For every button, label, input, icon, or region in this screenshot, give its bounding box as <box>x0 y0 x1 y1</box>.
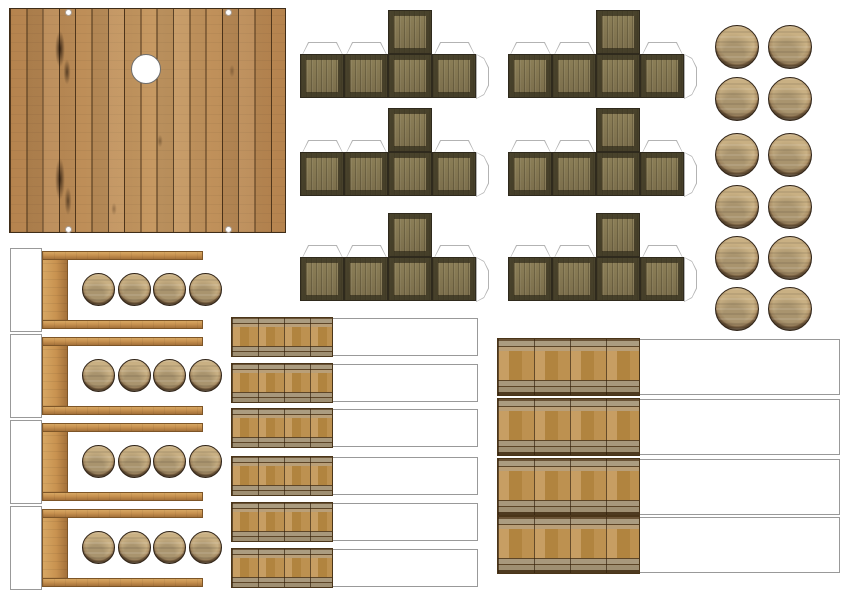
crate-glue-tab-fill <box>347 141 386 152</box>
crate-face <box>508 152 552 196</box>
crate-face <box>640 152 684 196</box>
barrel-top <box>715 287 759 331</box>
shelf-board-top <box>42 423 203 432</box>
crate-face <box>432 257 476 301</box>
crate-face <box>596 152 640 196</box>
barrel-top <box>715 77 759 121</box>
crate-face-top <box>596 10 640 54</box>
barrel-strip-blank <box>332 503 478 541</box>
shelf-post <box>42 251 68 329</box>
crate-glue-tab-fill <box>685 153 696 196</box>
barrel-strip-texture <box>497 516 640 574</box>
deck-corner-hole <box>65 226 72 233</box>
barrel-strip-small <box>231 317 478 357</box>
crate-glue-tab-fill <box>643 141 682 152</box>
barrel-strip-texture <box>497 458 640 516</box>
barrel-top <box>715 133 759 177</box>
shelf-glue-panel <box>10 248 42 332</box>
shelf-barrel <box>82 445 115 478</box>
crate-glue-tab-fill <box>435 43 474 54</box>
barrel-strip-blank <box>639 459 840 515</box>
shelf-glue-panel <box>10 334 42 418</box>
crate-glue-tab-fill <box>555 141 594 152</box>
shelf-board-top <box>42 337 203 346</box>
crate-face <box>552 54 596 98</box>
barrel-strip-small <box>231 363 478 403</box>
crate-face <box>388 54 432 98</box>
barrel-strip-small <box>231 548 478 588</box>
shelf-barrel <box>82 359 115 392</box>
crate-glue-tab-fill <box>477 55 488 98</box>
barrel-strip-large <box>497 516 840 574</box>
shelf-barrel <box>82 531 115 564</box>
shelf-barrel <box>82 273 115 306</box>
crate-face <box>300 54 344 98</box>
barrel-strip-texture <box>231 502 333 542</box>
shelf-barrel <box>118 359 151 392</box>
crate-net <box>300 213 490 303</box>
shelf-post <box>42 509 68 587</box>
shelf-post <box>42 337 68 415</box>
crate-face-top <box>596 108 640 152</box>
crate-face <box>344 257 388 301</box>
crate-face-top <box>388 10 432 54</box>
crate-face-top <box>388 108 432 152</box>
barrel-strip-blank <box>639 399 840 455</box>
crate-glue-tab-fill <box>435 141 474 152</box>
crate-face <box>432 152 476 196</box>
papercraft-sheet <box>0 0 849 600</box>
shelf-barrel <box>153 273 186 306</box>
crate-glue-tab-fill <box>347 246 386 257</box>
deck-corner-hole <box>225 226 232 233</box>
barrel-strip-texture <box>231 456 333 496</box>
crate-glue-tab-fill <box>435 246 474 257</box>
crate-glue-tab-fill <box>477 258 488 301</box>
crate-glue-tab-fill <box>303 141 342 152</box>
barrel-top <box>715 185 759 229</box>
shelf-unit <box>10 506 224 590</box>
shelf-glue-panel <box>10 420 42 504</box>
crate-glue-tab-side <box>476 152 489 197</box>
crate-face <box>640 54 684 98</box>
barrel-top <box>715 25 759 69</box>
crate-glue-tab-fill <box>555 246 594 257</box>
crate-face <box>508 257 552 301</box>
barrel-top <box>768 185 812 229</box>
crate-face <box>300 152 344 196</box>
barrel-strip-texture <box>497 398 640 456</box>
shelf-board-bottom <box>42 406 203 415</box>
shelf-board-bottom <box>42 578 203 587</box>
barrel-top <box>768 236 812 280</box>
barrel-top <box>768 287 812 331</box>
shelf-barrel <box>153 531 186 564</box>
shelf-barrel <box>189 531 222 564</box>
shelf-board-top <box>42 251 203 260</box>
crate-face <box>508 54 552 98</box>
shelf-barrel <box>153 445 186 478</box>
shelf-barrel <box>118 445 151 478</box>
shelf-unit <box>10 420 224 504</box>
deck-porthole <box>131 54 161 84</box>
barrel-top <box>768 133 812 177</box>
crate-glue-tab-fill <box>477 153 488 196</box>
barrel-strip-blank <box>332 549 478 587</box>
crate-glue-tab-fill <box>347 43 386 54</box>
barrel-strip-texture <box>497 338 640 396</box>
crate-glue-tab-fill <box>685 258 696 301</box>
shelf-glue-panel <box>10 506 42 590</box>
crate-glue-tab-fill <box>511 141 550 152</box>
shelf-barrel <box>189 273 222 306</box>
crate-face <box>344 54 388 98</box>
barrel-strip-texture <box>231 363 333 403</box>
crate-face <box>388 257 432 301</box>
crate-glue-tab-fill <box>643 246 682 257</box>
deck-corner-hole <box>65 9 72 16</box>
barrel-strip-blank <box>332 457 478 495</box>
crate-glue-tab-side <box>476 257 489 302</box>
crate-glue-tab-fill <box>685 55 696 98</box>
crate-glue-tab-fill <box>511 246 550 257</box>
crate-glue-tab-side <box>684 54 697 99</box>
crate-net <box>508 10 698 100</box>
crate-net <box>508 213 698 303</box>
crate-face <box>388 152 432 196</box>
barrel-top <box>715 236 759 280</box>
shelf-barrel <box>189 359 222 392</box>
shelf-post <box>42 423 68 501</box>
crate-glue-tab-fill <box>303 246 342 257</box>
deck-panel <box>9 8 286 233</box>
crate-face-top <box>388 213 432 257</box>
barrel-top <box>768 25 812 69</box>
crate-face <box>432 54 476 98</box>
barrel-strip-blank <box>639 339 840 395</box>
barrel-strip-texture <box>231 408 333 448</box>
crate-net <box>300 10 490 100</box>
crate-glue-tab-fill <box>303 43 342 54</box>
crate-face <box>300 257 344 301</box>
barrel-strip-small <box>231 502 478 542</box>
barrel-strip-small <box>231 456 478 496</box>
shelf-barrel <box>189 445 222 478</box>
shelf-unit <box>10 334 224 418</box>
shelf-board-bottom <box>42 320 203 329</box>
barrel-strip-blank <box>639 517 840 573</box>
crate-face <box>596 257 640 301</box>
crate-face-top <box>596 213 640 257</box>
crate-face <box>552 152 596 196</box>
crate-face <box>552 257 596 301</box>
crate-glue-tab-side <box>684 152 697 197</box>
crate-net <box>508 108 698 198</box>
crate-glue-tab-fill <box>555 43 594 54</box>
shelf-barrel <box>118 273 151 306</box>
deck-corner-hole <box>225 9 232 16</box>
barrel-strip-blank <box>332 364 478 402</box>
barrel-strip-texture <box>231 548 333 588</box>
barrel-strip-large <box>497 338 840 396</box>
crate-net <box>300 108 490 198</box>
shelf-board-bottom <box>42 492 203 501</box>
crate-glue-tab-side <box>684 257 697 302</box>
barrel-strip-large <box>497 458 840 516</box>
barrel-top <box>768 77 812 121</box>
barrel-strip-blank <box>332 318 478 356</box>
crate-face <box>640 257 684 301</box>
crate-face <box>596 54 640 98</box>
shelf-barrel <box>118 531 151 564</box>
crate-glue-tab-fill <box>511 43 550 54</box>
shelf-unit <box>10 248 224 332</box>
barrel-strip-blank <box>332 409 478 447</box>
shelf-barrel <box>153 359 186 392</box>
barrel-strip-texture <box>231 317 333 357</box>
crate-glue-tab-fill <box>643 43 682 54</box>
barrel-strip-small <box>231 408 478 448</box>
crate-glue-tab-side <box>476 54 489 99</box>
barrel-strip-large <box>497 398 840 456</box>
shelf-board-top <box>42 509 203 518</box>
crate-face <box>344 152 388 196</box>
